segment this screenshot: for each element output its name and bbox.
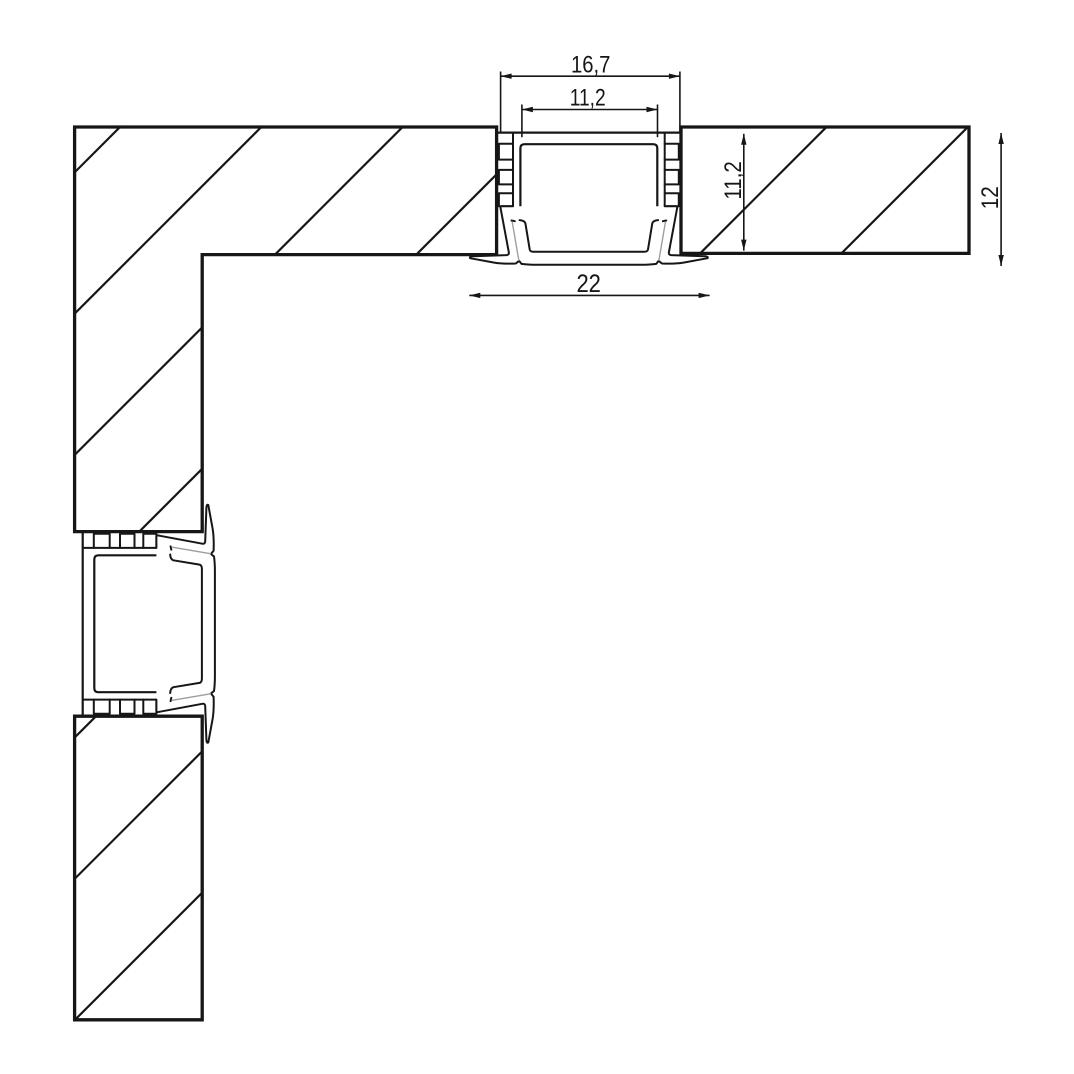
svg-text:22: 22 — [576, 270, 601, 298]
svg-text:11,2: 11,2 — [570, 85, 606, 112]
svg-text:16,7: 16,7 — [571, 52, 611, 79]
svg-text:11,2: 11,2 — [720, 161, 747, 200]
svg-text:12: 12 — [977, 186, 1004, 209]
